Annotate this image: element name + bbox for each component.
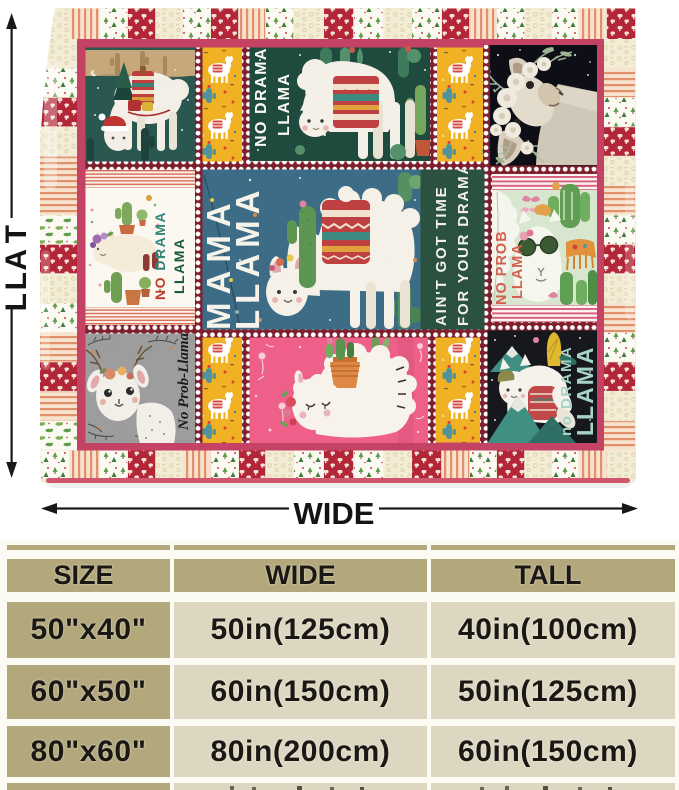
svg-text:No Prob-Llama: No Prob-Llama (176, 332, 192, 431)
svg-text:LLAMA: LLAMA (171, 238, 187, 295)
svg-text:L: L (0, 293, 33, 311)
svg-text:NO DRAMA: NO DRAMA (152, 211, 168, 300)
svg-text:LLAMA: LLAMA (572, 346, 598, 436)
svg-text:NO PROB: NO PROB (494, 230, 510, 305)
svg-text:AIN'T GOT TIME: AIN'T GOT TIME (433, 186, 450, 326)
svg-text:NO DRAMA: NO DRAMA (253, 47, 270, 147)
svg-text:LLAMA: LLAMA (510, 243, 526, 299)
svg-text:LLAMA: LLAMA (276, 73, 293, 136)
svg-text:FOR YOUR DRAMA: FOR YOUR DRAMA (455, 162, 472, 326)
svg-text:T: T (0, 225, 33, 243)
svg-text:WIDE: WIDE (294, 496, 375, 531)
svg-text:L: L (0, 272, 33, 290)
svg-text:A: A (0, 249, 33, 271)
svg-text:LLAMA: LLAMA (229, 185, 266, 330)
